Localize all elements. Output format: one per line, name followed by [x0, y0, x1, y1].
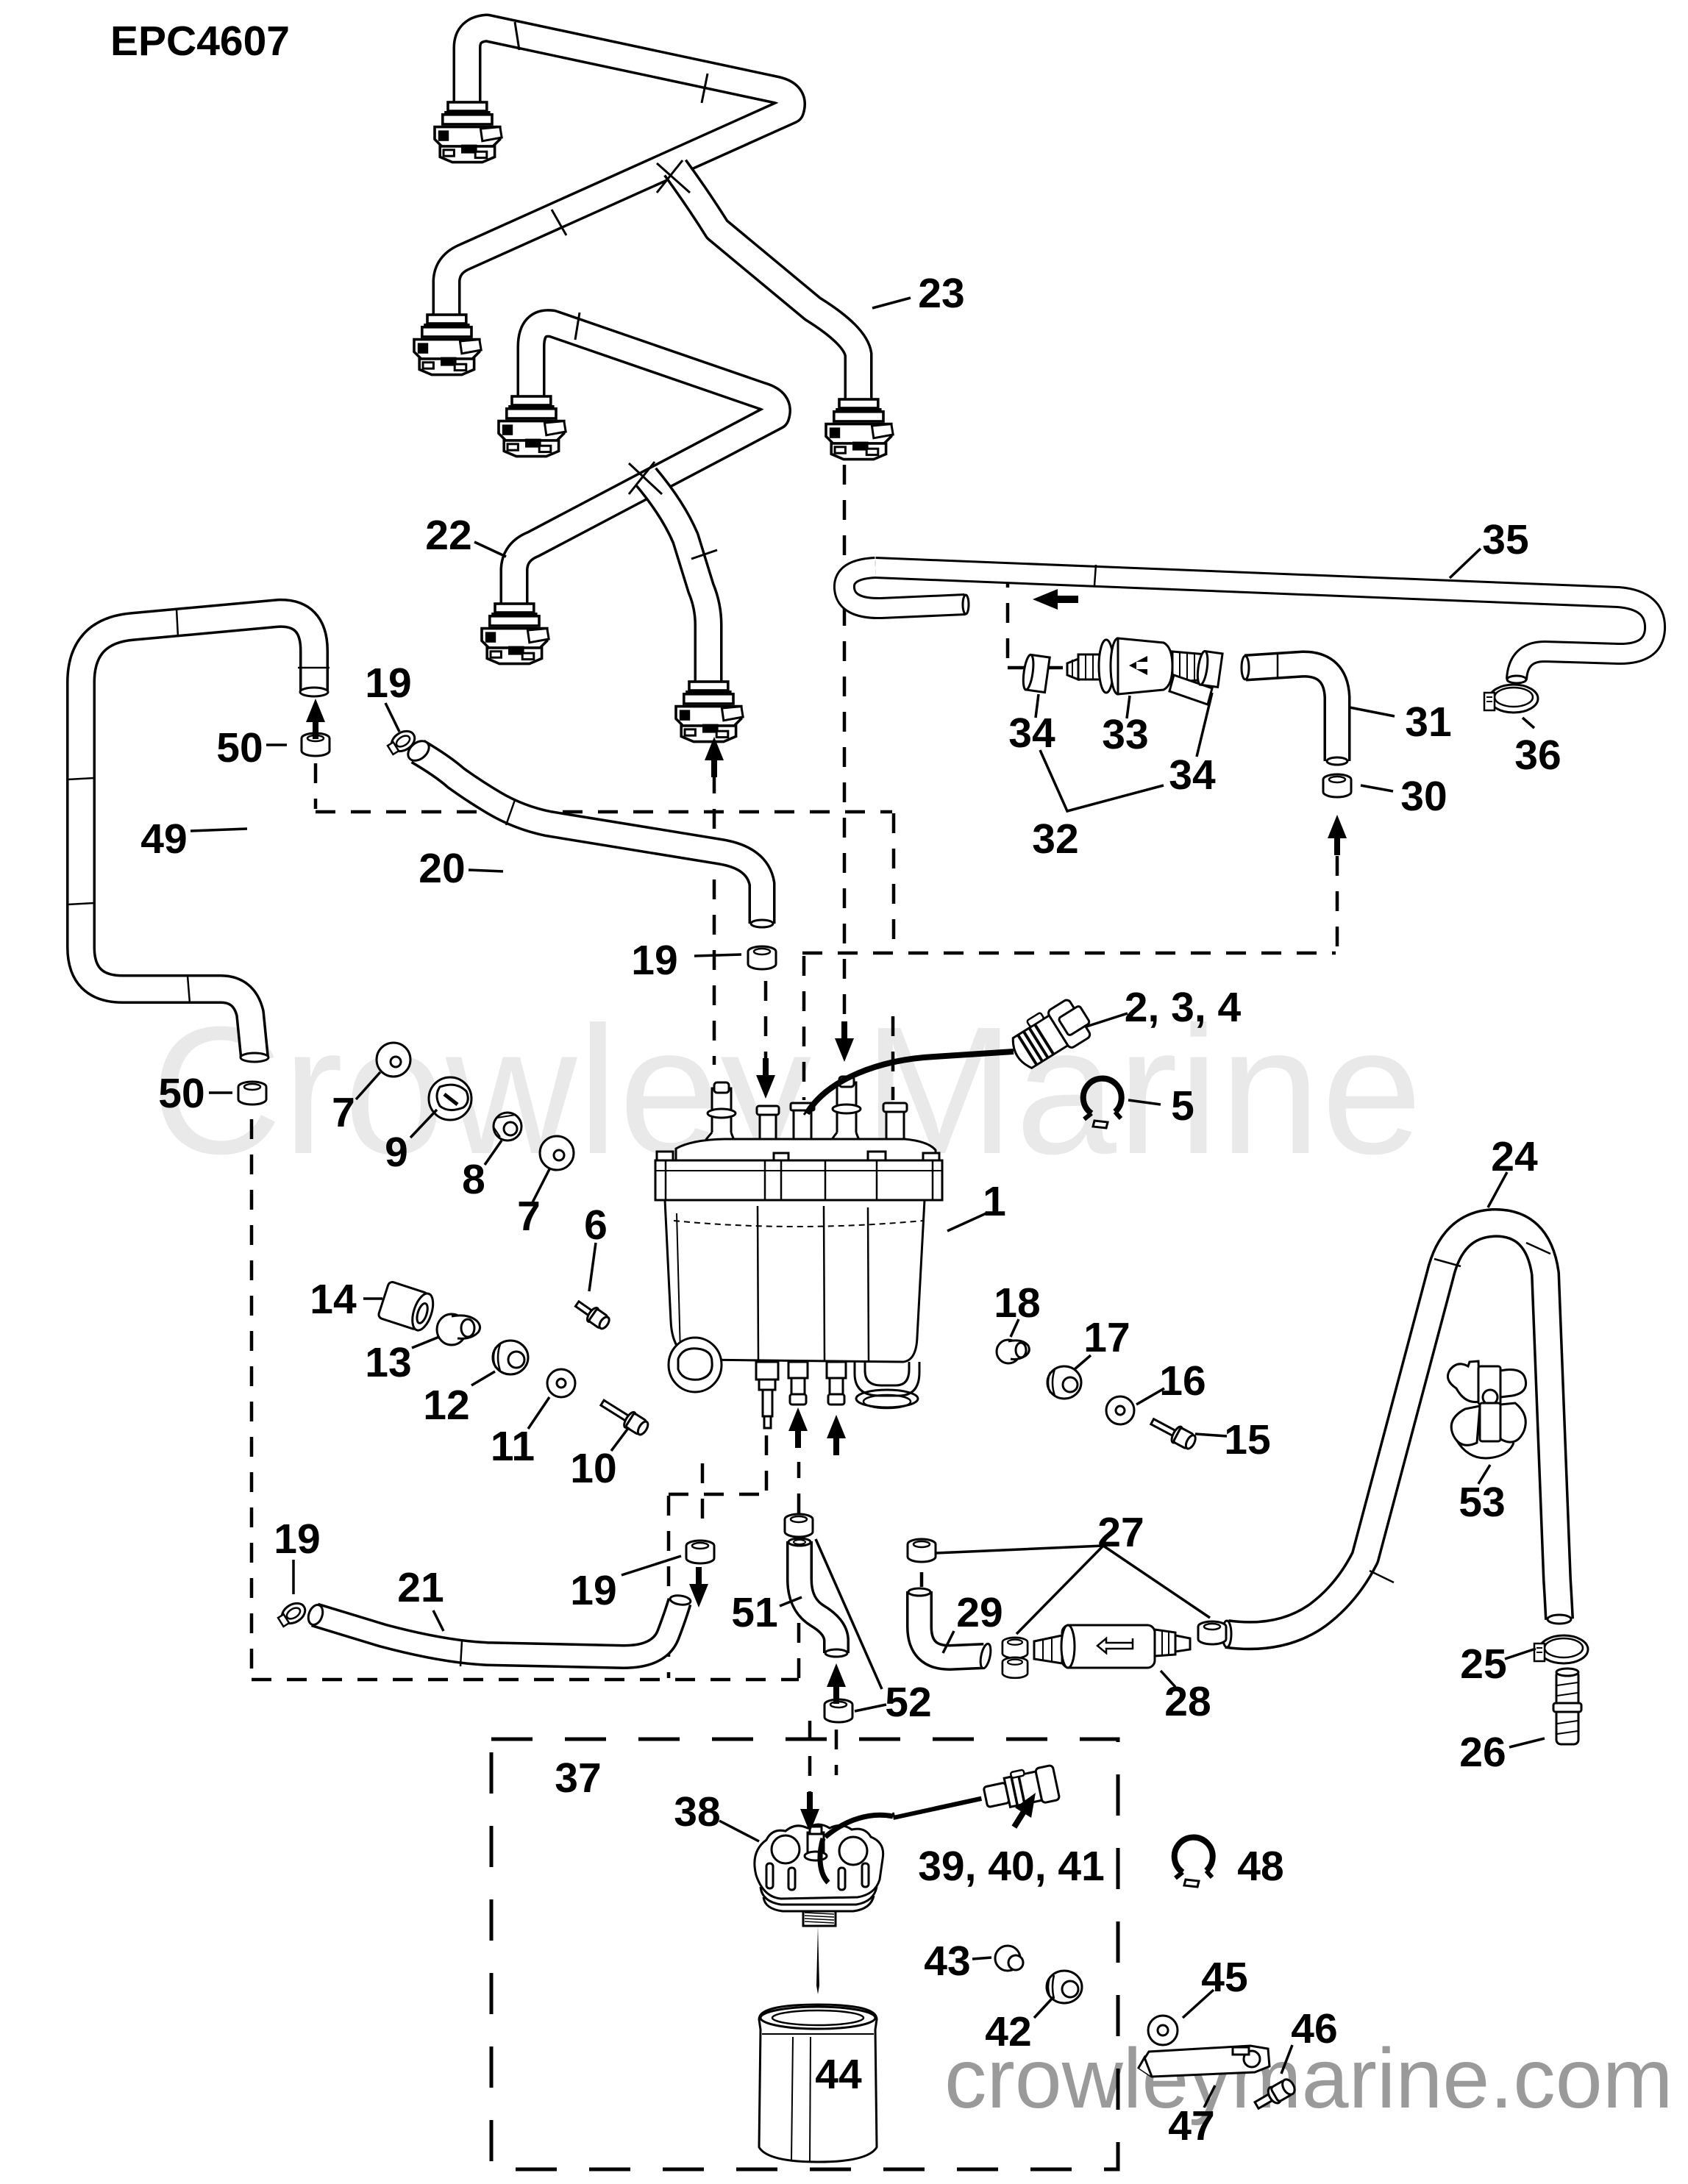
svg-text:EPC4607: EPC4607 — [110, 18, 290, 65]
svg-text:45: 45 — [1201, 1954, 1247, 2001]
svg-text:25: 25 — [1460, 1641, 1506, 1688]
svg-text:6: 6 — [584, 1202, 608, 1249]
svg-text:32: 32 — [1032, 816, 1078, 863]
svg-text:19: 19 — [631, 937, 677, 984]
svg-text:18: 18 — [994, 1280, 1040, 1327]
svg-text:8: 8 — [462, 1156, 485, 1203]
svg-text:13: 13 — [365, 1339, 411, 1386]
svg-text:5: 5 — [1171, 1082, 1194, 1130]
svg-text:23: 23 — [918, 270, 964, 317]
svg-text:22: 22 — [425, 512, 471, 559]
svg-text:12: 12 — [423, 1382, 469, 1429]
svg-text:15: 15 — [1224, 1416, 1270, 1463]
svg-text:34: 34 — [1169, 752, 1216, 799]
svg-text:9: 9 — [385, 1129, 408, 1176]
svg-text:14: 14 — [310, 1276, 357, 1323]
svg-text:44: 44 — [815, 2051, 862, 2098]
svg-text:47: 47 — [1168, 2102, 1214, 2149]
svg-text:38: 38 — [674, 1788, 720, 1835]
svg-text:53: 53 — [1459, 1479, 1505, 1526]
svg-text:29: 29 — [956, 1589, 1003, 1636]
svg-text:36: 36 — [1514, 732, 1561, 779]
svg-text:19: 19 — [274, 1516, 320, 1563]
svg-text:34: 34 — [1008, 710, 1055, 757]
svg-text:16: 16 — [1159, 1357, 1206, 1405]
svg-text:28: 28 — [1164, 1678, 1211, 1725]
svg-text:26: 26 — [1459, 1729, 1506, 1776]
svg-text:42: 42 — [985, 2008, 1031, 2055]
svg-text:7: 7 — [517, 1193, 541, 1240]
svg-text:30: 30 — [1400, 773, 1447, 820]
svg-text:35: 35 — [1482, 516, 1528, 563]
svg-text:49: 49 — [140, 816, 187, 863]
svg-text:37: 37 — [555, 1755, 601, 1802]
svg-text:20: 20 — [419, 845, 465, 892]
svg-text:10: 10 — [570, 1445, 616, 1492]
svg-text:31: 31 — [1405, 699, 1451, 746]
svg-text:19: 19 — [365, 660, 411, 707]
svg-text:33: 33 — [1102, 711, 1148, 758]
svg-text:43: 43 — [924, 1938, 970, 1985]
svg-text:39, 40, 41: 39, 40, 41 — [918, 1843, 1105, 1890]
svg-text:50: 50 — [158, 1070, 204, 1117]
svg-text:7: 7 — [332, 1089, 355, 1136]
svg-text:46: 46 — [1291, 2005, 1337, 2052]
svg-text:2, 3, 4: 2, 3, 4 — [1125, 984, 1242, 1031]
svg-text:51: 51 — [731, 1589, 777, 1636]
svg-text:1: 1 — [983, 1178, 1006, 1225]
svg-text:11: 11 — [491, 1423, 535, 1470]
svg-text:48: 48 — [1237, 1843, 1283, 1890]
svg-text:52: 52 — [885, 1679, 931, 1726]
svg-text:17: 17 — [1083, 1314, 1130, 1361]
svg-text:50: 50 — [216, 724, 263, 771]
svg-text:19: 19 — [570, 1567, 616, 1614]
svg-text:21: 21 — [397, 1564, 444, 1611]
svg-text:24: 24 — [1491, 1133, 1538, 1180]
svg-text:27: 27 — [1097, 1509, 1144, 1556]
